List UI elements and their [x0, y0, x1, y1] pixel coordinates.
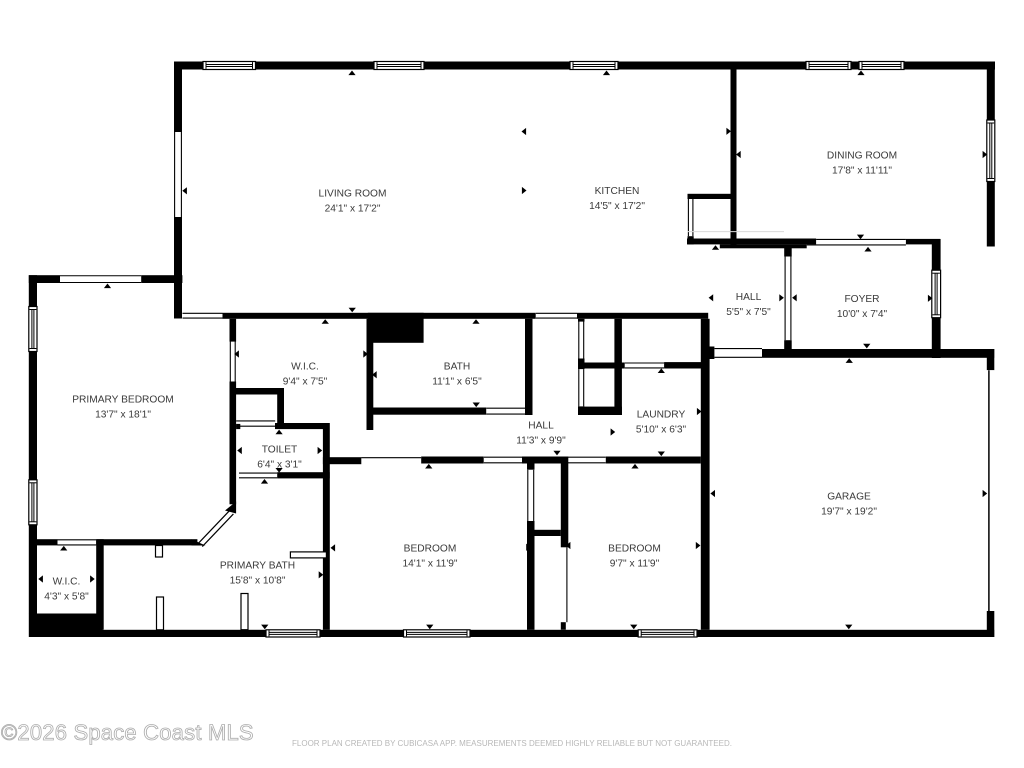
- svg-text:©2026 Space Coast MLS: ©2026 Space Coast MLS: [1, 720, 254, 745]
- svg-text:PRIMARY BEDROOM: PRIMARY BEDROOM: [72, 395, 174, 406]
- svg-text:TOILET: TOILET: [262, 445, 297, 456]
- svg-text:14'5" x 17'2": 14'5" x 17'2": [589, 201, 645, 212]
- svg-text:5'5" x 7'5": 5'5" x 7'5": [726, 307, 771, 318]
- svg-text:GARAGE: GARAGE: [827, 492, 871, 503]
- svg-text:BEDROOM: BEDROOM: [608, 544, 661, 555]
- svg-text:FOYER: FOYER: [844, 294, 879, 305]
- svg-text:W.I.C.: W.I.C.: [291, 362, 319, 373]
- svg-text:LAUNDRY: LAUNDRY: [637, 410, 686, 421]
- svg-text:9'4" x 7'5": 9'4" x 7'5": [283, 377, 328, 388]
- svg-text:19'7" x 19'2": 19'7" x 19'2": [821, 507, 877, 518]
- svg-text:FLOOR PLAN CREATED BY CUBICASA: FLOOR PLAN CREATED BY CUBICASA APP. MEAS…: [292, 739, 732, 748]
- svg-text:BEDROOM: BEDROOM: [404, 544, 457, 555]
- svg-text:10'0" x 7'4": 10'0" x 7'4": [837, 309, 888, 320]
- svg-text:HALL: HALL: [528, 421, 554, 432]
- svg-text:9'7" x 11'9": 9'7" x 11'9": [610, 559, 660, 570]
- svg-text:5'10" x 6'3": 5'10" x 6'3": [636, 425, 687, 436]
- svg-text:13'7" x 18'1": 13'7" x 18'1": [95, 410, 151, 421]
- svg-text:6'4" x 3'1": 6'4" x 3'1": [257, 460, 302, 471]
- svg-text:11'3" x 9'9": 11'3" x 9'9": [516, 436, 566, 447]
- svg-text:DINING ROOM: DINING ROOM: [827, 151, 897, 162]
- svg-text:KITCHEN: KITCHEN: [595, 186, 640, 197]
- svg-text:4'3" x 5'8": 4'3" x 5'8": [44, 592, 89, 603]
- svg-text:LIVING ROOM: LIVING ROOM: [319, 189, 387, 200]
- svg-text:HALL: HALL: [736, 292, 762, 303]
- svg-text:17'8" x 11'11": 17'8" x 11'11": [832, 166, 892, 177]
- svg-text:W.I.C.: W.I.C.: [53, 577, 81, 588]
- svg-text:15'8" x 10'8": 15'8" x 10'8": [230, 576, 286, 587]
- svg-text:11'1" x 6'5": 11'1" x 6'5": [432, 377, 482, 388]
- svg-text:BATH: BATH: [444, 362, 470, 373]
- svg-text:24'1" x 17'2": 24'1" x 17'2": [325, 204, 381, 215]
- svg-text:14'1" x 11'9": 14'1" x 11'9": [402, 559, 457, 570]
- svg-text:PRIMARY BATH: PRIMARY BATH: [220, 561, 295, 572]
